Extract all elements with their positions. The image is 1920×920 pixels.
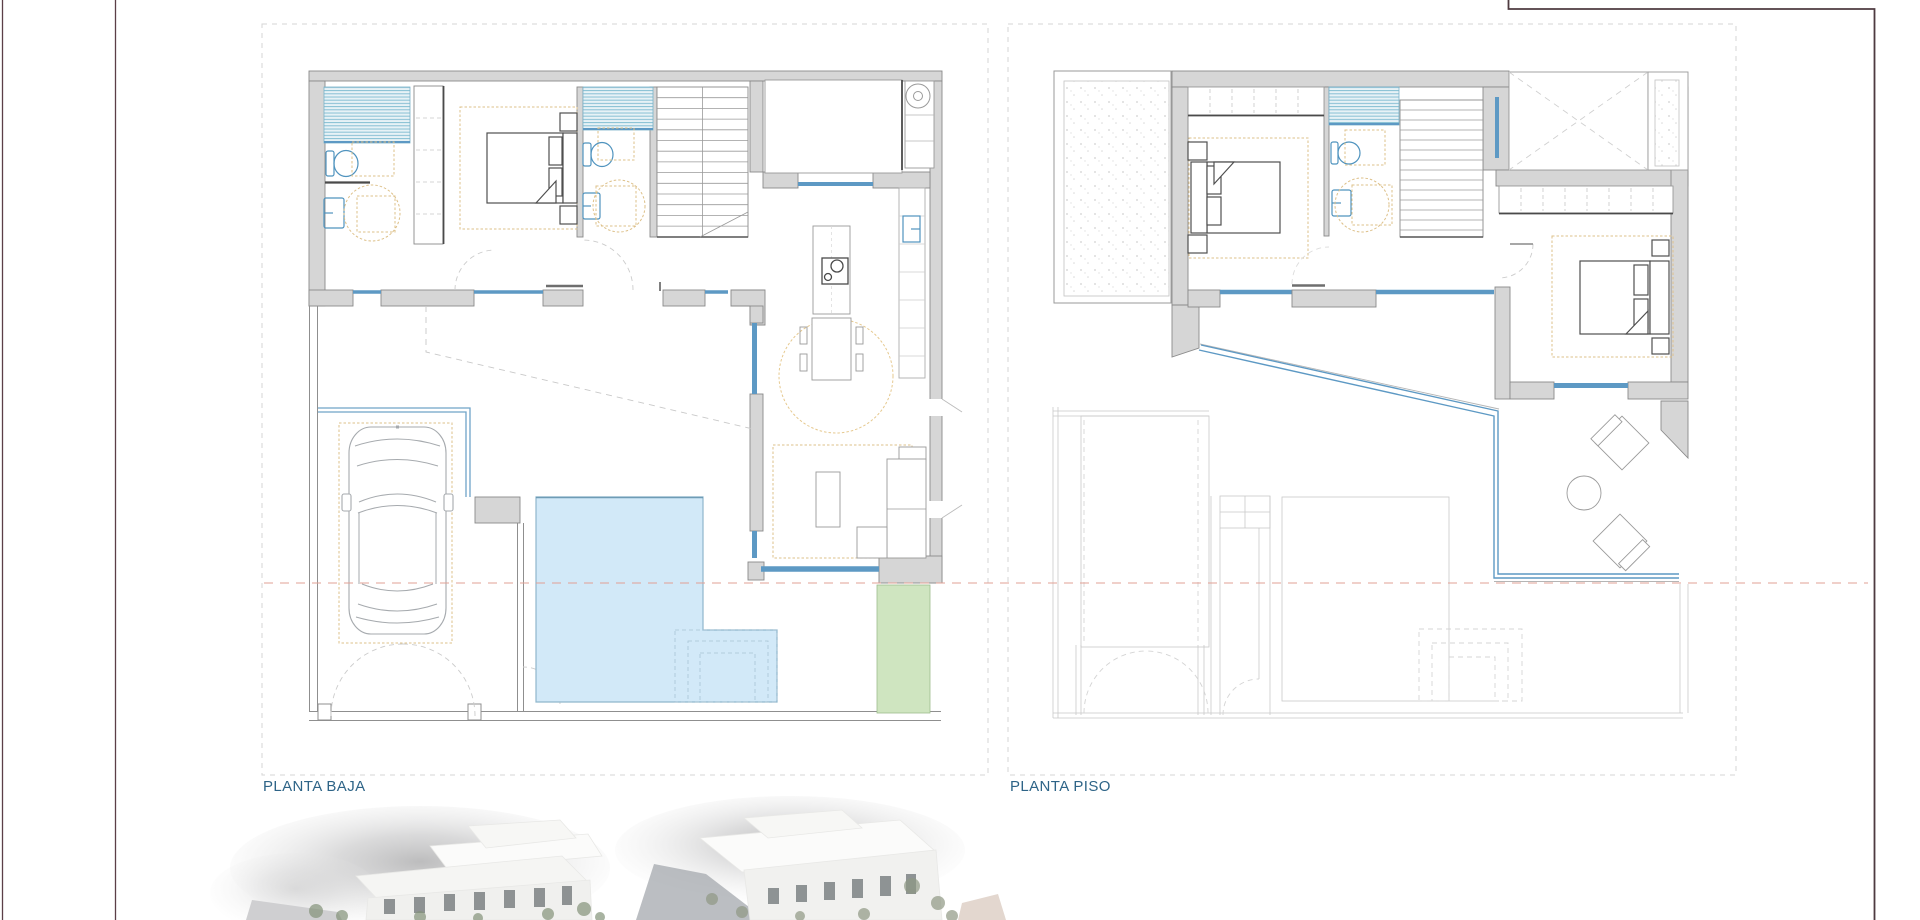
svg-text:PLANTA PISO: PLANTA PISO (1010, 778, 1111, 795)
svg-text:PLANTA BAJA: PLANTA BAJA (263, 778, 366, 795)
